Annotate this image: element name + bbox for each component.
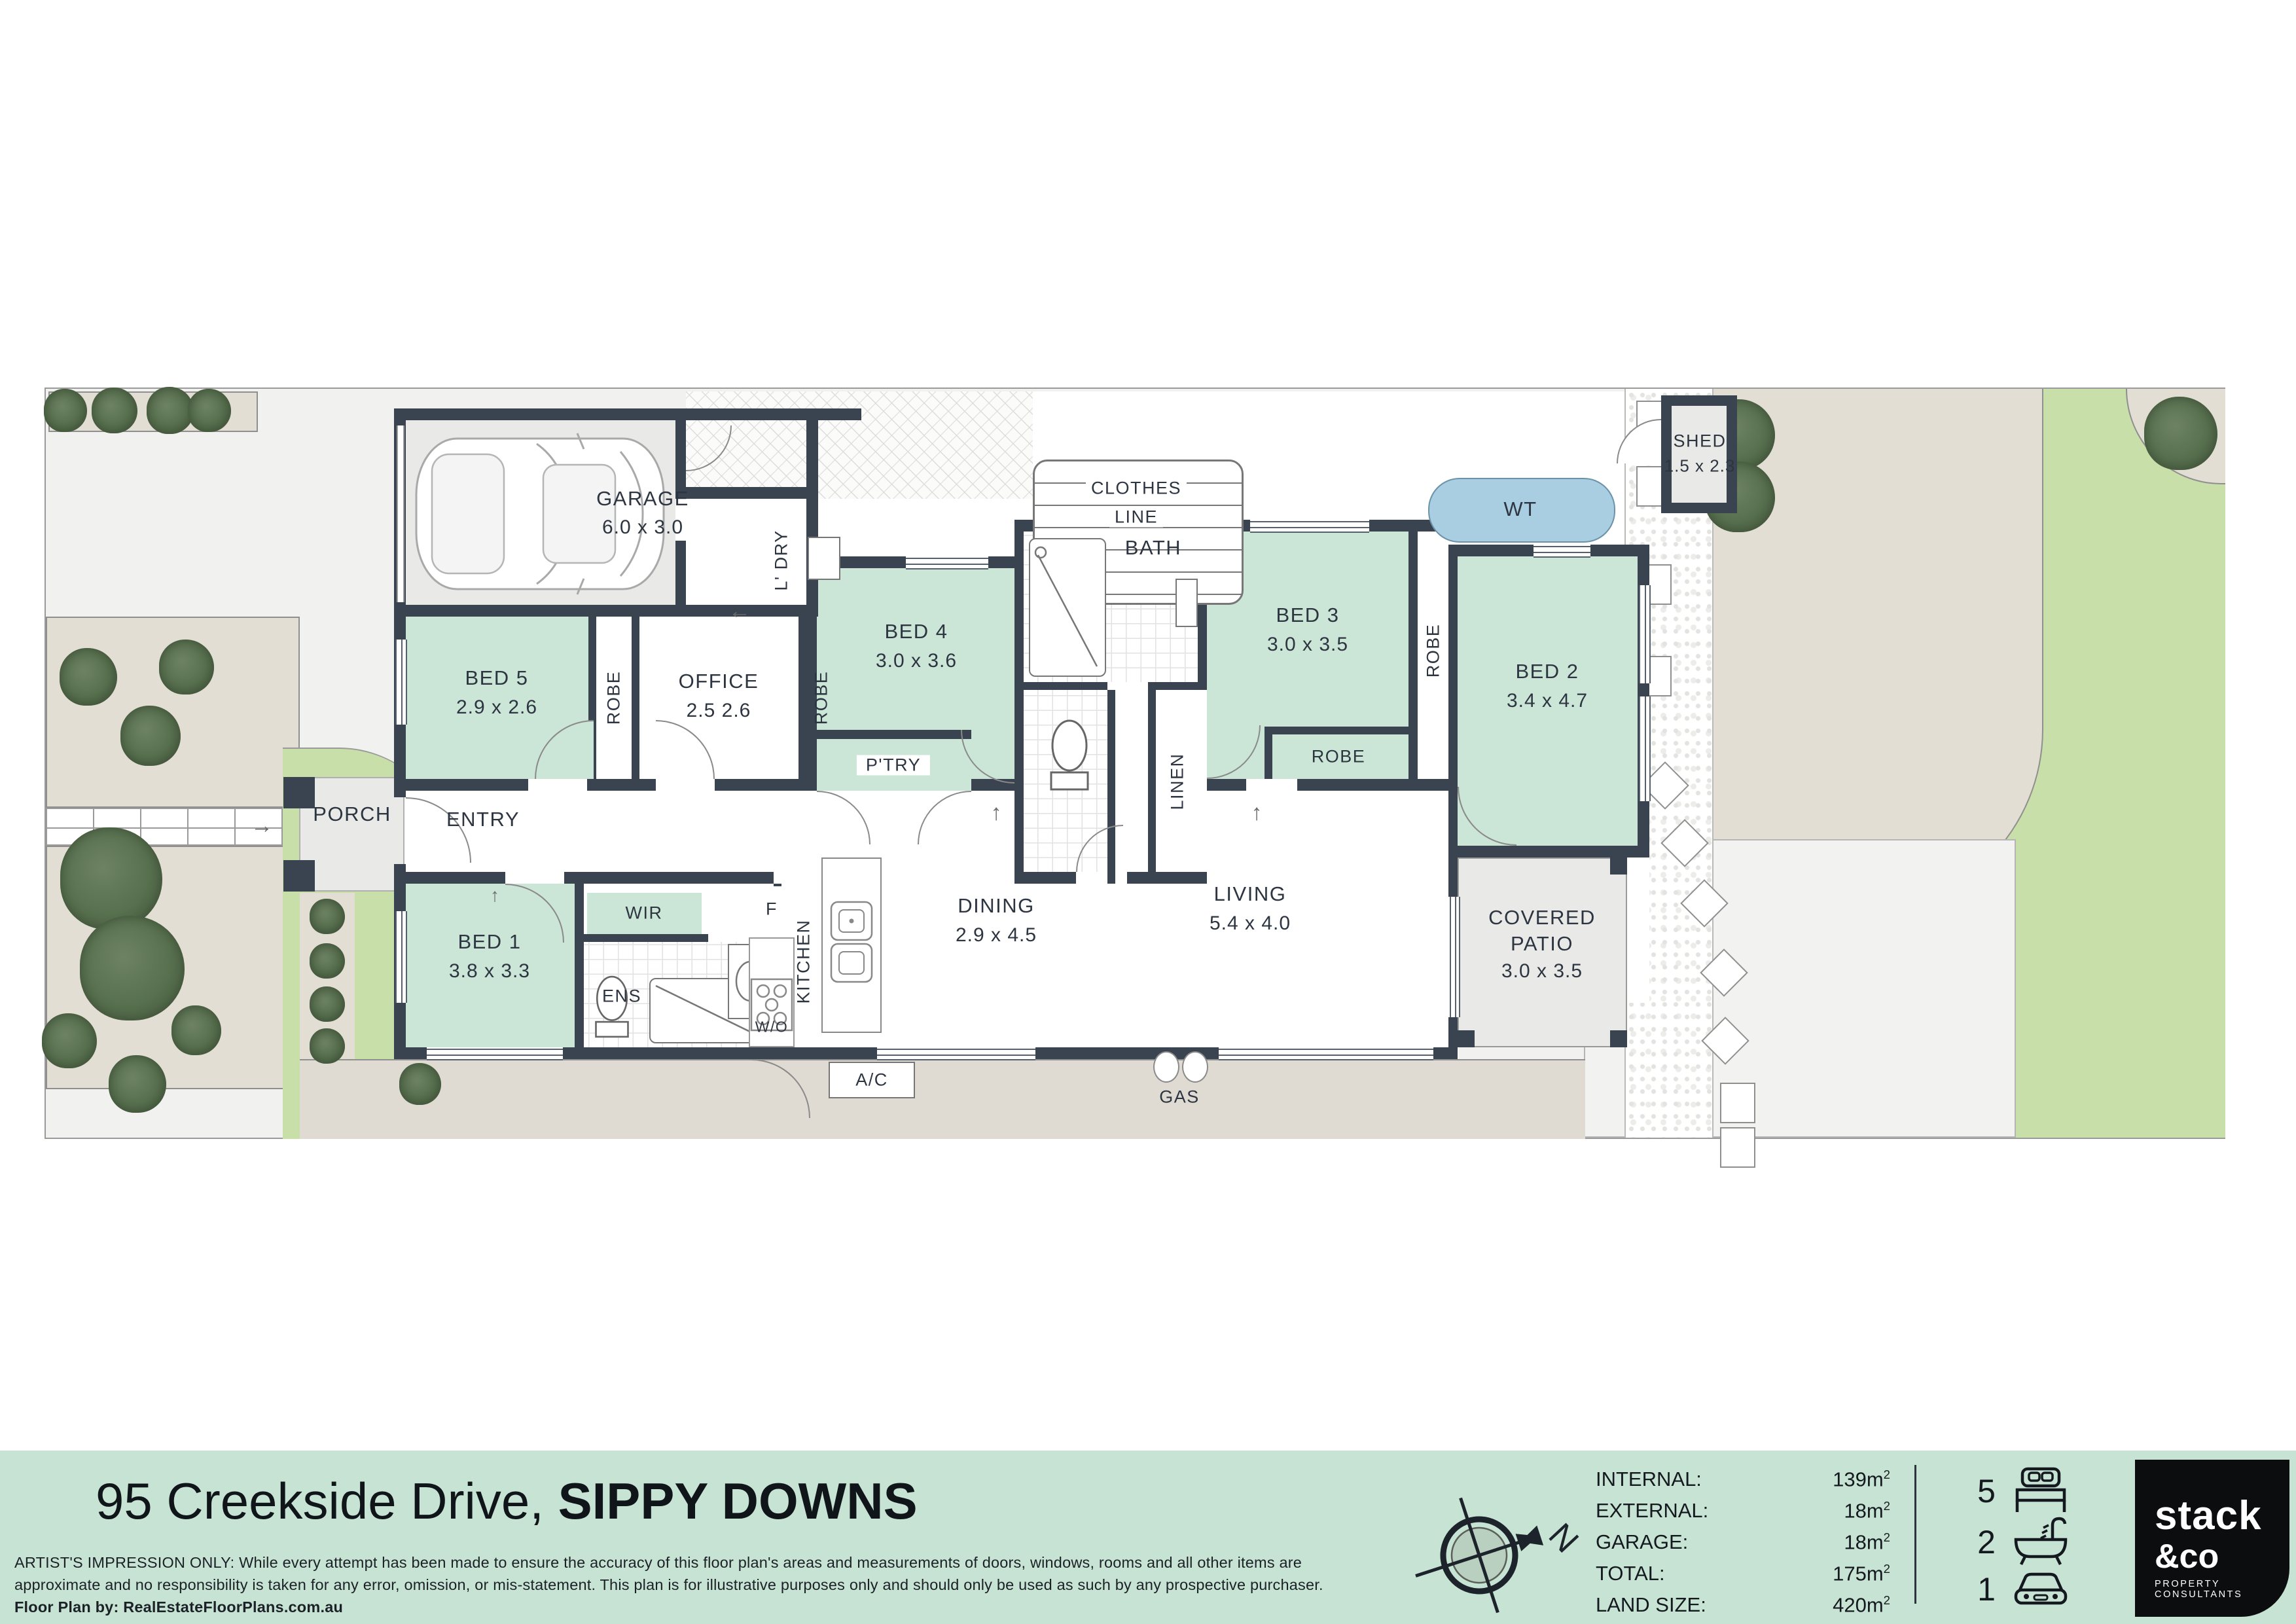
bed3-arrow-icon: ↑: [1251, 801, 1263, 826]
bath-icon: [2011, 1516, 2071, 1568]
clothes-line-label-1: CLOTHES: [1086, 478, 1187, 499]
patio-sliding-door: [1450, 897, 1460, 1017]
bath-label: BATH: [1125, 536, 1181, 560]
bath-vanity: [1175, 579, 1198, 627]
disclaimer-line-2: approximate and no responsibility is tak…: [14, 1576, 1323, 1594]
car-icon: [412, 432, 668, 596]
disclaimer-line-1: ARTIST'S IMPRESSION ONLY: While every at…: [14, 1554, 1302, 1572]
stepping-stone: [1700, 948, 1748, 997]
entry-label: ENTRY: [446, 808, 520, 831]
gas-bottle-1: [1153, 1051, 1179, 1083]
wc-toilet-icon: [1043, 710, 1096, 795]
clothes-line-label-2: LINE: [1109, 507, 1163, 528]
dining-dims: 2.9 x 4.5: [956, 924, 1037, 947]
floorplan-page: GARAGE 6.0 x 3.0 L' DRY BED 5 2.9 x 2.6 …: [0, 0, 2296, 1624]
dining-window: [877, 1049, 1035, 1060]
stats-divider: [1914, 1465, 1916, 1604]
robe-strip-label: ROBE: [1424, 624, 1444, 678]
wir-label: WIR: [626, 903, 663, 924]
bed2-window-east-1: [1639, 585, 1651, 683]
patio-label-2: PATIO: [1511, 932, 1573, 956]
gas-bottle-2: [1182, 1051, 1208, 1083]
dining-label: DINING: [958, 894, 1035, 918]
site-plan: GARAGE 6.0 x 3.0 L' DRY BED 5 2.9 x 2.6 …: [45, 388, 2225, 1139]
shed-dims: 1.5 x 2.3: [1664, 456, 1736, 477]
bed2-window: [1534, 546, 1590, 558]
kitchen-label: KITCHEN: [794, 919, 814, 1003]
bed5-dims: 2.9 x 2.6: [456, 696, 537, 719]
patio-dims: 3.0 x 3.5: [1501, 960, 1583, 983]
bath-shower-glass: [1029, 538, 1106, 677]
bed2-dims: 3.4 x 4.7: [1507, 690, 1588, 712]
stat-row: INTERNAL:139m2: [1596, 1468, 1890, 1494]
stepping-stone: [1660, 819, 1709, 867]
cars-count: 1: [1977, 1570, 1996, 1608]
bed3-window: [1250, 521, 1369, 533]
robe-bed3-label: ROBE: [1312, 747, 1366, 767]
bed2-label: BED 2: [1515, 660, 1579, 683]
bed2-window-east-2: [1639, 696, 1651, 801]
shed-label: SHED: [1673, 431, 1726, 452]
shed-floor: [1672, 406, 1727, 503]
bed1-label: BED 1: [457, 930, 521, 954]
fridge-label: F: [766, 899, 778, 920]
garage-door: [397, 425, 404, 602]
stepping-stone: [1720, 1083, 1755, 1123]
stat-row: GARAGE:18m2: [1596, 1530, 1890, 1557]
stat-row: TOTAL:175m2: [1596, 1562, 1890, 1588]
ac-label: A/C: [855, 1070, 888, 1091]
laundry-door-leaf: [808, 537, 840, 580]
porch-floor: [299, 777, 404, 892]
stepping-stone: [1680, 879, 1729, 928]
living-label: LIVING: [1214, 882, 1287, 906]
beds-count: 5: [1977, 1472, 1996, 1510]
office-dims: 2.5 2.6: [687, 700, 751, 722]
linen-label: LINEN: [1168, 753, 1188, 810]
patio-label-1: COVERED: [1488, 906, 1596, 929]
bed3-dims: 3.0 x 3.5: [1267, 634, 1348, 656]
agency-logo: stack &co PROPERTY CONSULTANTS: [2135, 1460, 2289, 1617]
car-count-icon: [2011, 1568, 2071, 1611]
island-sink: [829, 899, 874, 984]
logo-line-2: &co: [2155, 1537, 2219, 1576]
logo-tagline: PROPERTY CONSULTANTS: [2155, 1579, 2289, 1600]
ens-label: ENS: [602, 986, 641, 1007]
bed1-window: [395, 911, 407, 1003]
laundry-arrow-icon: ←: [728, 599, 751, 624]
bed4-label: BED 4: [884, 620, 948, 643]
garage-dims: 6.0 x 3.0: [602, 516, 683, 539]
bed-icon: [2011, 1466, 2071, 1516]
svg-text:N: N: [1541, 1516, 1584, 1560]
living-sliding-door: [1219, 1049, 1433, 1060]
stepping-stone: [1720, 1127, 1755, 1168]
bed3-label: BED 3: [1276, 604, 1339, 627]
office-label: OFFICE: [679, 670, 759, 693]
bed5-label: BED 5: [465, 666, 528, 690]
compass-icon: N: [1401, 1490, 1584, 1621]
path-arrow-icon: →: [251, 814, 273, 839]
stat-row: LAND SIZE:420m2: [1596, 1593, 1890, 1619]
garage-label: GARAGE: [596, 487, 689, 511]
footer-bar: 95 Creekside Drive, SIPPY DOWNS ARTIST'S…: [0, 1451, 2296, 1624]
robe-bed5-label: ROBE: [604, 671, 624, 725]
bed4-dims: 3.0 x 3.6: [876, 650, 957, 672]
laundry-label: L' DRY: [772, 530, 792, 590]
robe-office-label: ROBE: [812, 671, 832, 725]
logo-line-1: stack: [2155, 1492, 2262, 1539]
stepping-stone: [1701, 1017, 1749, 1065]
bed4-window: [906, 558, 988, 569]
bed1-arrow-icon: ↑: [490, 885, 499, 906]
bed4-arrow-icon: ↑: [991, 801, 1002, 826]
pantry-label: P'TRY: [857, 755, 930, 776]
page-title: 95 Creekside Drive, SIPPY DOWNS: [96, 1471, 918, 1531]
bed5-window: [395, 640, 407, 725]
bed1-south-window: [427, 1049, 563, 1060]
porch-label: PORCH: [313, 803, 391, 826]
baths-count: 2: [1977, 1523, 1996, 1561]
credit-line: Floor Plan by: RealEstateFloorPlans.com.…: [14, 1598, 343, 1616]
bed1-dims: 3.8 x 3.3: [449, 960, 530, 983]
water-tank-label: WT: [1503, 497, 1537, 521]
gas-label: GAS: [1159, 1087, 1200, 1108]
wall-oven-label: W/O: [755, 1019, 789, 1036]
stat-row: EXTERNAL:18m2: [1596, 1499, 1890, 1525]
living-dims: 5.4 x 4.0: [1210, 912, 1291, 935]
